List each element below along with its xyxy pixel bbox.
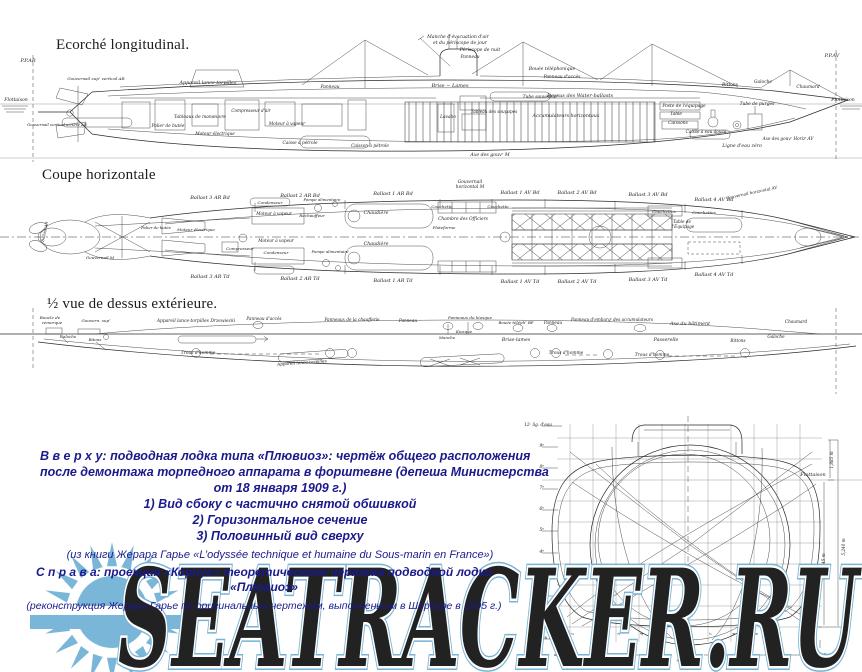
drawing-label: Accumulateurs horizontaux: [532, 113, 600, 119]
drawing-label: Ballast 2 AV Bd: [556, 190, 596, 196]
drawing-label: Tube de purges: [740, 102, 776, 107]
drawing-label: Ballast 3 AR Bd: [189, 195, 230, 201]
drawing-label: Panneaux de la chaufferie: [323, 317, 380, 322]
drawing-label: Ballast 1 AV Bd: [499, 190, 539, 196]
caption-line: 3) Половинный вид сверху: [40, 528, 520, 544]
drawing-label: Panneau: [398, 318, 417, 323]
drawing-label: Manche d'évacuation d'air: [426, 33, 490, 40]
drawing-label: Gouvernail M: [86, 255, 115, 260]
drawing-label: Panneau d'accès: [245, 316, 281, 321]
caption-line: 1) Вид сбоку с частично снятой обшивкой: [40, 496, 520, 512]
drawing-label: Tube sauveteur: [523, 95, 559, 100]
drawing-label: Moteur électrique: [176, 227, 215, 232]
drawing-label: Caisse à eau douce: [686, 129, 727, 134]
drawing-label: Gouvernail supʳ vertical AR: [67, 76, 124, 81]
drawing-label: et du périscope de jour: [433, 39, 488, 46]
drawing-label: Périscope de nuit: [459, 46, 501, 53]
drawing-label: Trous d'homme: [549, 351, 584, 356]
drawing-label: Appareil lance-torpilles: [179, 80, 237, 86]
drawing-label: Ballast AR: [40, 221, 49, 243]
drawing-label: Couchettes: [652, 209, 675, 214]
caption-line: «Плювиоз»: [14, 580, 514, 595]
drawing-label: Pompe alimentaire: [302, 197, 341, 202]
drawing-label: Ballast 1 AR Bd: [372, 191, 413, 197]
drawing-label: Compresseur d'air: [231, 108, 271, 113]
sun-ray: [71, 646, 89, 669]
drawing-label: Réchauffeur: [298, 213, 325, 218]
drawing-label: Ballast 4 AV Td: [694, 272, 734, 278]
drawing-label: Plateforme: [432, 225, 456, 230]
drawing-label: l'Équipage: [672, 224, 695, 229]
drawing-label: Ballast 3 AR Td: [189, 274, 229, 280]
drawing-label: remorque: [42, 320, 63, 325]
half-top-view-drawing: Boucle deremorqueGouvern. supʳGalocheBit…: [0, 308, 862, 400]
caption-line: В в е р х у: подводная лодка типа «Плюви…: [40, 448, 520, 464]
longitudinal-view-drawing: P.P.ARP.P.AVFlottaisonFlottaisonManche d…: [0, 30, 862, 172]
drawing-label: Lavabo: [439, 115, 456, 120]
drawing-label: Gouvernail vertical arrière AR: [27, 122, 87, 127]
drawing-label: Gouvern. supʳ: [81, 318, 111, 323]
drawing-label: 5ᵉ: [540, 528, 545, 533]
caption-right-block: С п р а в а: проекция «Корпус» теоретиче…: [14, 565, 514, 613]
drawing-label: Compresseur: [226, 246, 255, 251]
drawing-label: Moteur à vapeur: [255, 211, 293, 216]
drawing-label: Appareil lance-torpilles: [276, 358, 327, 367]
drawing-label: Galoche: [767, 334, 785, 339]
drawing-label: Ligne d'eau zéro: [721, 142, 762, 149]
drawing-label: Trous d'homme: [181, 351, 216, 356]
drawing-label: Gouvernail horizontal AV: [726, 184, 779, 200]
drawing-label: Chaudière: [364, 240, 389, 247]
sun-ray: [55, 635, 78, 653]
drawing-label: Bouée téléphʳ BF: [497, 320, 533, 325]
drawing-label: Palier de butée: [140, 225, 172, 230]
drawing-label: Moteur électrique: [194, 132, 235, 137]
drawing-label: Moteur à vapeur: [268, 122, 306, 127]
drawing-label: Manche: [438, 335, 456, 340]
drawing-label: Panneaux du kiosque: [447, 315, 493, 320]
drawing-label: Palier de butée: [151, 124, 185, 129]
drawing-label: 7ᵉ: [540, 486, 545, 491]
drawing-label: Ballast 1 AR Td: [372, 278, 412, 284]
drawing-label: Bitons: [88, 337, 102, 342]
drawing-label: Ballast 3 AV Bd: [627, 192, 667, 198]
drawing-label: Pompe alimentaire: [310, 249, 349, 254]
drawing-label: Axe des gouvʳ Horizᵗ AV: [762, 136, 815, 141]
scanned-page: Ecorché longitudinal. Coupe horizontale …: [0, 0, 862, 672]
drawing-label: Flottaison: [830, 97, 854, 103]
drawing-label: P.P.AR: [19, 58, 35, 64]
drawing-label: Galoche: [60, 334, 77, 339]
drawing-label: Flottaison: [799, 472, 825, 478]
drawing-label: Caisson à pétrole: [351, 144, 389, 149]
caption-line: после демонтажа торпедного аппарата в фо…: [40, 464, 520, 480]
drawing-label: Bouée téléphonique: [528, 65, 576, 72]
drawing-label: P.P.AV: [824, 53, 841, 59]
drawing-label: Couchettes: [692, 210, 715, 215]
drawing-label: Bittons: [729, 338, 745, 343]
drawing-label: Moteur à vapeur: [257, 238, 295, 243]
drawing-label: Appareil lance-torpilles Drzewiecki: [156, 319, 236, 324]
drawing-label: Poste de l'équipage: [661, 104, 706, 109]
caption-source: (из книги Жерара Гарье «L’odyssée techni…: [40, 548, 520, 562]
drawing-label: 6ᵉ: [540, 507, 545, 512]
caption-line: 2) Горизонтальное сечение: [40, 512, 520, 528]
horizontal-section-drawing: Ballast 3 AR BdBallast 2 AR BdBallast 1 …: [0, 178, 862, 296]
drawing-label: Panneau d'accès: [543, 75, 582, 80]
drawing-label: Tableaux de manœuvre: [174, 115, 226, 120]
drawing-label: Couchette: [431, 204, 453, 209]
drawing-label: Caissons: [668, 121, 688, 126]
drawing-label: 1,885 m: [829, 451, 834, 468]
drawing-label: Brise − Lames: [430, 83, 469, 89]
drawing-label: Couchette: [487, 204, 509, 209]
drawing-label: Caisse à pétrole: [282, 141, 318, 146]
caption-line: С п р а в а: проекция «Корпус» теоретиче…: [14, 565, 514, 580]
drawing-label: 12ᵉ lig. d'eau: [524, 422, 552, 427]
drawing-label: Panneau: [543, 320, 562, 325]
drawing-label: Galoche: [754, 80, 772, 85]
drawing-label: Condenseur: [263, 250, 289, 255]
drawing-label: Panneau d'embarqᵗ des accumulateurs: [570, 317, 653, 322]
caption-source: (реконструкция Жерара Гарье по оригиналь…: [14, 599, 514, 613]
drawing-label: Trous d'homme: [635, 353, 670, 358]
sun-ray: [107, 658, 117, 672]
drawing-label: Ballast 2 AV Td: [557, 279, 597, 285]
drawing-label: Ballast 3 AV Td: [628, 277, 668, 283]
drawing-label: Flottaison: [3, 97, 27, 103]
drawing-label: Kiosque: [455, 329, 473, 334]
drawing-label: Chambre des Officiers: [438, 217, 489, 222]
drawing-label: Condenseur: [257, 200, 283, 205]
drawing-label: Ballast 1 AV Td: [500, 279, 540, 285]
drawing-label: horizontal M: [456, 185, 485, 190]
drawing-label: Chaudière: [364, 209, 389, 216]
drawing-label: Panneau: [459, 55, 479, 60]
drawing-label: Bittons: [721, 83, 739, 88]
sun-ray: [90, 654, 102, 672]
caption-top-block: В в е р х у: подводная лодка типа «Плюви…: [40, 448, 520, 562]
drawing-label: Chaumard: [785, 319, 808, 324]
drawing-label: Chaumard: [796, 85, 820, 90]
drawing-label: Passerelle: [653, 337, 679, 343]
drawing-label: 9ᵉ: [540, 444, 545, 449]
drawing-label: Panneau: [319, 85, 339, 90]
drawing-label: Axe du bâtiment: [669, 320, 710, 327]
drawing-label: Brise-lames: [501, 337, 531, 343]
drawing-label: Table: [670, 112, 682, 117]
drawing-label: Axe des gouvʳ M: [469, 152, 510, 158]
drawing-label: Ballast 2 AR Td: [279, 276, 319, 282]
caption-line: от 18 января 1909 г.): [40, 480, 520, 496]
drawing-label: Tableau des soupapes: [471, 109, 517, 114]
